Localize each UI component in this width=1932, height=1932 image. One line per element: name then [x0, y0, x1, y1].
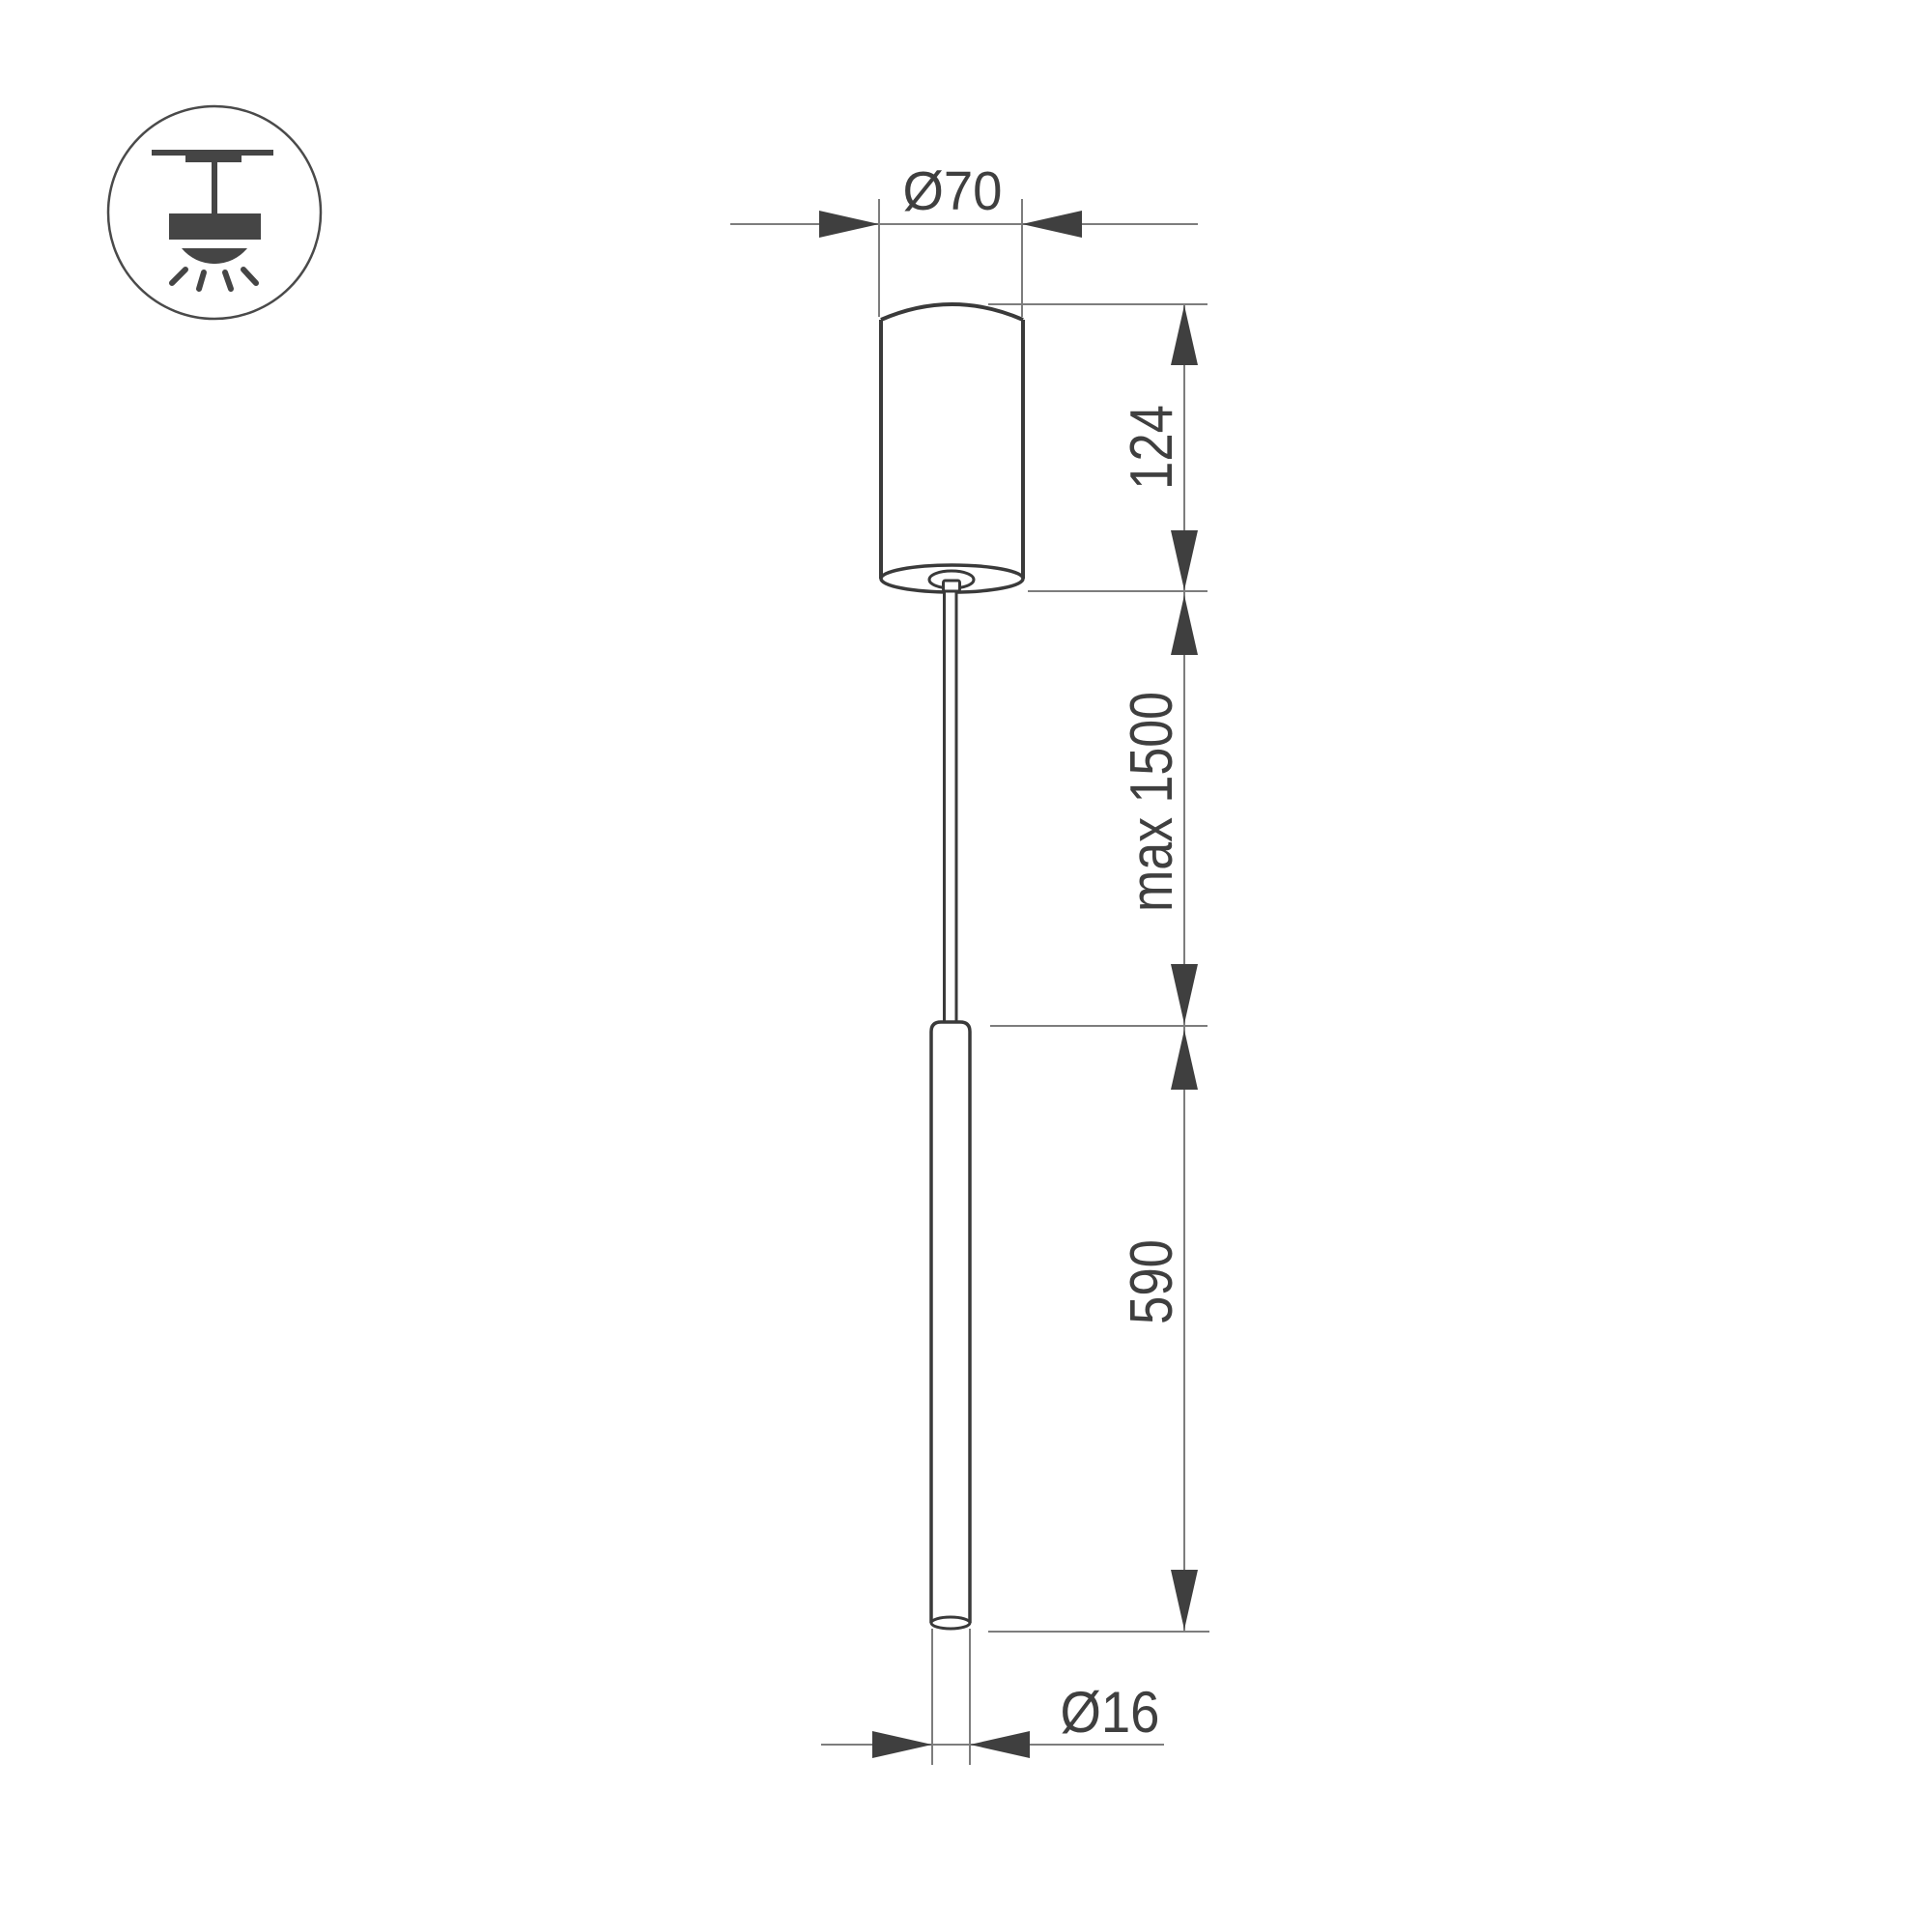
arrowhead-up-icon [1171, 595, 1198, 655]
dim-canopy-diameter: Ø70 [730, 160, 1198, 317]
tube-bottom-rim [931, 1617, 970, 1629]
dimension-label-suspension-length: max 1500 [1119, 692, 1185, 912]
arrowhead-down-icon [1171, 530, 1198, 590]
arrowhead-right-icon [872, 1731, 932, 1758]
dim-canopy-height: 124 [1119, 305, 1198, 590]
pendant-tube [931, 1022, 970, 1629]
wire-grommet-neck [944, 581, 960, 591]
dimension-label-tube-diameter: Ø16 [1061, 1680, 1160, 1745]
drawing-canvas: Ø70 124 max 1500 590 [0, 0, 1932, 1932]
dimension-label-tube-length: 590 [1119, 1239, 1185, 1324]
arrowhead-up-icon [1171, 1030, 1198, 1090]
arrowhead-left-icon [970, 1731, 1030, 1758]
dim-tube-length: 590 [1119, 1030, 1198, 1630]
arrowhead-down-icon [1171, 1570, 1198, 1630]
dim-tube-diameter: Ø16 [821, 1629, 1164, 1765]
mounting-type-icon [108, 106, 321, 319]
arrowhead-left-icon [1022, 211, 1082, 238]
icon-lamp-body [169, 213, 261, 240]
icon-stem [212, 160, 217, 215]
canopy-body-fill [881, 304, 1023, 579]
arrowhead-up-icon [1171, 305, 1198, 365]
arrowhead-right-icon [819, 211, 879, 238]
tube-body [931, 1022, 970, 1623]
suspension-wire [945, 591, 957, 1022]
icon-ceiling-line [152, 150, 273, 156]
ceiling-canopy [881, 304, 1023, 592]
dim-suspension-length: max 1500 [1119, 595, 1198, 1024]
dimension-label-canopy-diameter: Ø70 [903, 160, 1003, 222]
dimension-drawing: Ø70 124 max 1500 590 [0, 0, 1932, 1932]
arrowhead-down-icon [1171, 964, 1198, 1024]
dimension-label-canopy-height: 124 [1119, 405, 1185, 490]
